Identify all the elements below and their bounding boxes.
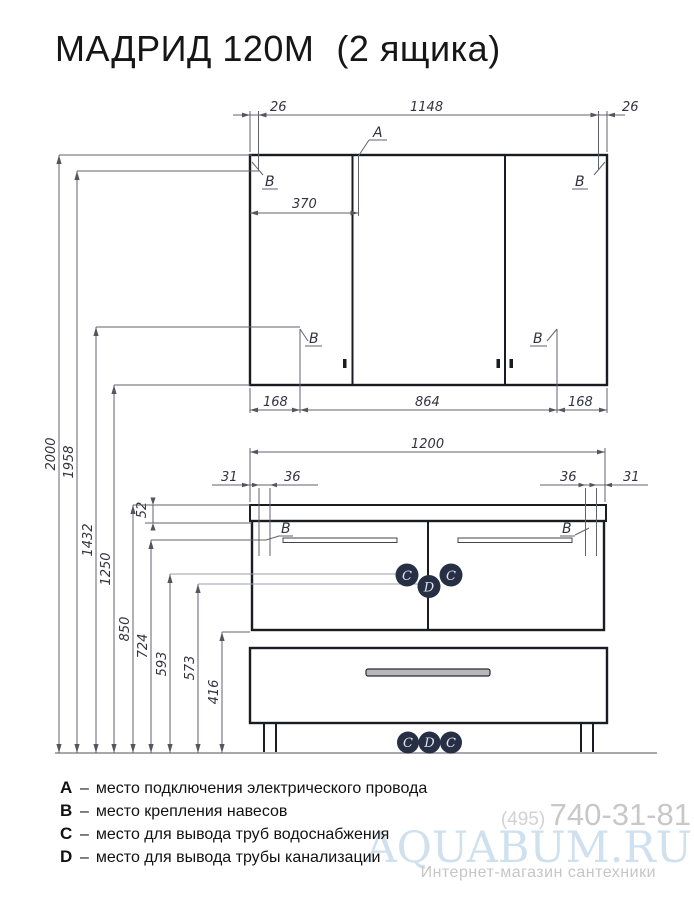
countertop	[250, 505, 606, 521]
legend: A–место подключения электрического прово…	[60, 776, 427, 868]
dim-label: 724	[136, 634, 151, 659]
mounting-rail	[458, 538, 572, 543]
legend-key: B	[60, 799, 76, 822]
legend-row-b: B–место крепления навесов	[60, 799, 427, 822]
legend-key: D	[60, 845, 76, 868]
marker-c-text: C	[402, 569, 412, 584]
dim-label: 52	[135, 502, 150, 519]
dim-label: 1958	[62, 445, 77, 478]
dim-label: 168	[263, 395, 288, 410]
dim-top: 26 1148 26	[233, 100, 639, 170]
legend-separator: –	[80, 849, 89, 866]
vanity-cabinet	[250, 505, 606, 630]
dim-label: 864	[415, 395, 440, 410]
page: (495) 740-31-81 AQUABUM.RU Интернет-мага…	[0, 0, 694, 900]
legend-separator: –	[80, 780, 89, 797]
dim-countertop-52: 52	[135, 498, 252, 531]
dim-label: 593	[155, 652, 170, 677]
dim-label: 2000	[44, 437, 59, 470]
dim-vanity-right: 36 31	[540, 470, 648, 556]
marker-b-text: B	[281, 521, 291, 537]
marker-c-text: C	[446, 569, 456, 584]
marker-d-text: D	[423, 581, 435, 596]
legend-row-a: A–место подключения электрического прово…	[60, 776, 427, 799]
legend-row-d: D–место для вывода трубы канализации	[60, 845, 427, 868]
marker-b-text: B	[309, 331, 319, 347]
dim-label: 416	[207, 680, 222, 705]
marker-c-text: C	[403, 736, 413, 751]
technical-drawing: 26 1148 26 370 A B B	[0, 0, 694, 900]
marker-b-text: B	[575, 174, 585, 190]
dim-label: 1200	[411, 437, 444, 452]
mirror-cabinet	[250, 155, 607, 385]
legend-desc: место для вывода труб водоснабжения	[96, 826, 389, 843]
dim-label: 573	[183, 656, 198, 681]
supply-markers-floor: C C D	[397, 732, 462, 754]
dim-vanity-left: 31 36	[212, 470, 318, 556]
legend-desc: место подключения электрического провода	[96, 780, 427, 797]
dim-label: 36	[284, 470, 301, 485]
legend-separator: –	[80, 826, 89, 843]
dim-label: 168	[568, 395, 593, 410]
dim-label: 26	[270, 100, 287, 115]
marker-b-text: B	[562, 521, 572, 537]
dim-label: 36	[560, 470, 577, 485]
legend-key: A	[60, 776, 76, 799]
door-handle	[343, 359, 347, 368]
door-handle	[497, 359, 501, 368]
marker-b-mirror-top: B B	[252, 162, 605, 190]
mounting-rail	[283, 538, 397, 543]
marker-b-text: B	[533, 331, 543, 347]
legend-desc: место крепления навесов	[96, 803, 288, 820]
legend-separator: –	[80, 803, 89, 820]
dim-label: 1432	[81, 523, 96, 556]
legend-row-c: C–место для вывода труб водоснабжения	[60, 822, 427, 845]
marker-c-text: C	[446, 736, 456, 751]
dim-label: 26	[622, 100, 639, 115]
dim-370: 370	[250, 197, 359, 215]
dim-label: 850	[118, 617, 133, 642]
dim-label: 1250	[99, 552, 114, 585]
dim-label: 31	[221, 470, 238, 485]
door-handle	[510, 359, 514, 368]
marker-b-text: B	[265, 174, 275, 190]
marker-a-text: A	[372, 125, 383, 141]
height-dimensions: 2000 1958 1432 1250 850	[44, 155, 422, 753]
dim-label: 1148	[410, 100, 443, 115]
legend-desc: место для вывода трубы канализации	[96, 849, 381, 866]
marker-a-label: A	[359, 125, 388, 156]
drawer-handle	[366, 669, 490, 676]
dim-label: 31	[623, 470, 640, 485]
dim-1200: 1200	[250, 437, 605, 502]
dim-label: 370	[292, 197, 317, 212]
dim-mirror-bottom: 168 864 168	[250, 388, 607, 413]
marker-d-text: D	[423, 736, 435, 751]
legend-key: C	[60, 822, 76, 845]
